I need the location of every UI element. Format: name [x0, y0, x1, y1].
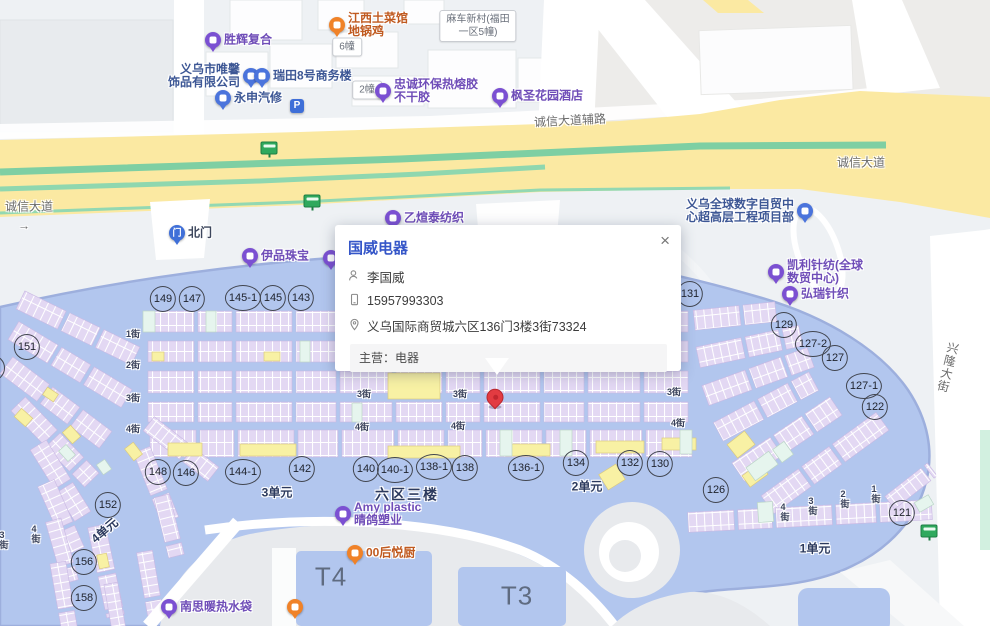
terminal-building-label: T3: [501, 590, 533, 603]
gate-number-circle[interactable]: -1: [0, 355, 5, 381]
poi-label[interactable]: 南思暖热水袋: [180, 601, 252, 614]
gate-number-circle[interactable]: 134: [563, 450, 589, 476]
poi-pin-purple[interactable]: [205, 32, 221, 48]
gate-number-circle[interactable]: 152: [95, 492, 121, 518]
gate-number-circle[interactable]: 144-1: [225, 459, 261, 485]
street-label: 4街: [126, 424, 140, 434]
poi-pin-purple[interactable]: [385, 210, 401, 226]
gate-number-circle[interactable]: 142: [289, 456, 315, 482]
person-icon: [348, 269, 361, 285]
gate-number-circle[interactable]: 146: [173, 460, 199, 486]
gate-number-circle[interactable]: 145: [260, 285, 286, 311]
popup-title: 国威电器: [348, 237, 669, 258]
poi-label[interactable]: 江西土菜馆地锅鸡: [348, 12, 408, 38]
gate-number-circle[interactable]: 132: [617, 450, 643, 476]
close-icon[interactable]: ×: [660, 232, 670, 249]
street-label: 3街: [667, 387, 681, 397]
street-label: 3街: [453, 389, 467, 399]
unit-label: 2单元: [572, 481, 603, 494]
gate-number-circle[interactable]: 136-1: [508, 455, 544, 481]
gate-number-circle[interactable]: 138-1: [416, 454, 452, 480]
gate-number-circle[interactable]: 149: [150, 286, 176, 312]
poi-pin-purple[interactable]: [242, 248, 258, 264]
gate-number-circle[interactable]: 145-1: [225, 285, 261, 311]
poi-pin-purple[interactable]: [335, 506, 351, 522]
poi-pin-blue[interactable]: [254, 68, 270, 84]
bus-stop-icon[interactable]: [304, 195, 321, 208]
street-label: 4街: [451, 421, 465, 431]
poi-pin-purple[interactable]: [161, 599, 177, 615]
street-label: 1街: [871, 484, 880, 504]
poi-label[interactable]: 伊品珠宝: [261, 250, 309, 263]
poi-pin-gate[interactable]: 门: [169, 225, 185, 241]
poi-label[interactable]: Amy plastic晴鸽塑业: [354, 501, 421, 527]
unit-label: 4单元: [89, 516, 121, 546]
building-number-box: 麻车新村(福田一区5幢): [439, 10, 516, 42]
poi-pin-purple[interactable]: [375, 83, 391, 99]
poi-pin-orange[interactable]: [287, 599, 303, 615]
gate-number-circle[interactable]: 127: [822, 345, 848, 371]
poi-label[interactable]: 凯利针纺(全球数贸中心): [787, 259, 863, 285]
parking-icon[interactable]: P: [290, 99, 304, 113]
road-name-label: 诚信大道: [5, 201, 53, 214]
poi-pin-purple[interactable]: [768, 264, 784, 280]
bus-stop-icon[interactable]: [261, 142, 278, 155]
street-label: 4街: [355, 422, 369, 432]
address: 义乌国际商贸城六区136门3楼3街73324: [367, 316, 587, 335]
unit-label: 3单元: [262, 487, 293, 500]
gate-number-circle[interactable]: 156: [71, 549, 97, 575]
street-label: 1街: [126, 329, 140, 339]
street-label: 4街: [780, 502, 789, 522]
poi-label[interactable]: 永申汽修: [234, 92, 282, 105]
street-label: 3街: [808, 496, 817, 516]
phone-icon: [348, 293, 361, 309]
poi-label[interactable]: 义乌全球数字自贸中心超高层工程项目部: [686, 198, 794, 224]
poi-label[interactable]: 枫圣花园酒店: [511, 90, 583, 103]
road-name-label: 兴隆大街: [936, 341, 960, 394]
gate-number-circle[interactable]: 126: [703, 477, 729, 503]
poi-pin-blue[interactable]: [797, 203, 813, 219]
poi-label[interactable]: 瑞田8号商务楼: [273, 70, 352, 83]
poi-label[interactable]: 胜辉复合: [224, 34, 272, 47]
street-label: 3街: [0, 530, 9, 550]
gate-number-circle[interactable]: 122: [862, 394, 888, 420]
gate-number-circle[interactable]: 140-1: [377, 457, 413, 483]
street-label: 4街: [31, 524, 40, 544]
poi-label[interactable]: 弘瑞针织: [801, 288, 849, 301]
info-popup: × 国威电器 李国威 15957993303 义乌国际商贸城六区136门3楼3街…: [335, 225, 681, 371]
poi-pin-blue[interactable]: [215, 90, 231, 106]
road-name-label: →: [18, 220, 30, 233]
poi-label[interactable]: 义乌市唯馨饰品有限公司: [168, 63, 240, 89]
poi-label[interactable]: 北门: [188, 227, 212, 240]
gate-number-circle[interactable]: 147: [179, 286, 205, 312]
road-name-label: 诚信大道: [837, 157, 885, 170]
gate-number-circle[interactable]: 151: [14, 334, 40, 360]
poi-label[interactable]: 忠诚环保热熔胶不干胶: [394, 78, 478, 104]
map-viewport: 1街2街3街4街3街3街3街4街4街4街4街3街4街3街2街1街3单元六区三楼2…: [0, 0, 990, 626]
gate-number-circle[interactable]: 129: [771, 312, 797, 338]
gate-number-circle[interactable]: 130: [647, 451, 673, 477]
street-label: 2街: [126, 360, 140, 370]
unit-label: 1单元: [800, 543, 831, 556]
street-label: 3街: [357, 389, 371, 399]
gate-number-circle[interactable]: 148: [145, 459, 171, 485]
gate-number-circle[interactable]: 158: [71, 585, 97, 611]
poi-label[interactable]: 乙煊泰纺织: [404, 212, 464, 225]
phone-number[interactable]: 15957993303: [367, 294, 443, 308]
gate-number-circle[interactable]: 140: [353, 456, 379, 482]
road-name-label: 诚信大道辅路: [534, 113, 607, 130]
bus-stop-icon[interactable]: [921, 525, 938, 538]
terminal-building-label: T4: [315, 571, 347, 584]
location-icon: [348, 318, 361, 334]
street-label: 4街: [671, 418, 685, 428]
gate-number-circle[interactable]: 121: [889, 500, 915, 526]
red-location-marker[interactable]: [483, 385, 507, 409]
gate-number-circle[interactable]: 138: [452, 455, 478, 481]
poi-pin-orange[interactable]: [329, 17, 345, 33]
gate-number-circle[interactable]: 143: [288, 285, 314, 311]
poi-label[interactable]: 00后悦厨: [366, 547, 415, 560]
street-label: 2街: [840, 489, 849, 509]
popup-tail: [485, 358, 509, 387]
poi-pin-orange[interactable]: [347, 545, 363, 561]
poi-pin-purple[interactable]: [782, 286, 798, 302]
poi-pin-purple[interactable]: [492, 88, 508, 104]
street-label: 3街: [126, 393, 140, 403]
contact-name: 李国威: [367, 267, 405, 286]
